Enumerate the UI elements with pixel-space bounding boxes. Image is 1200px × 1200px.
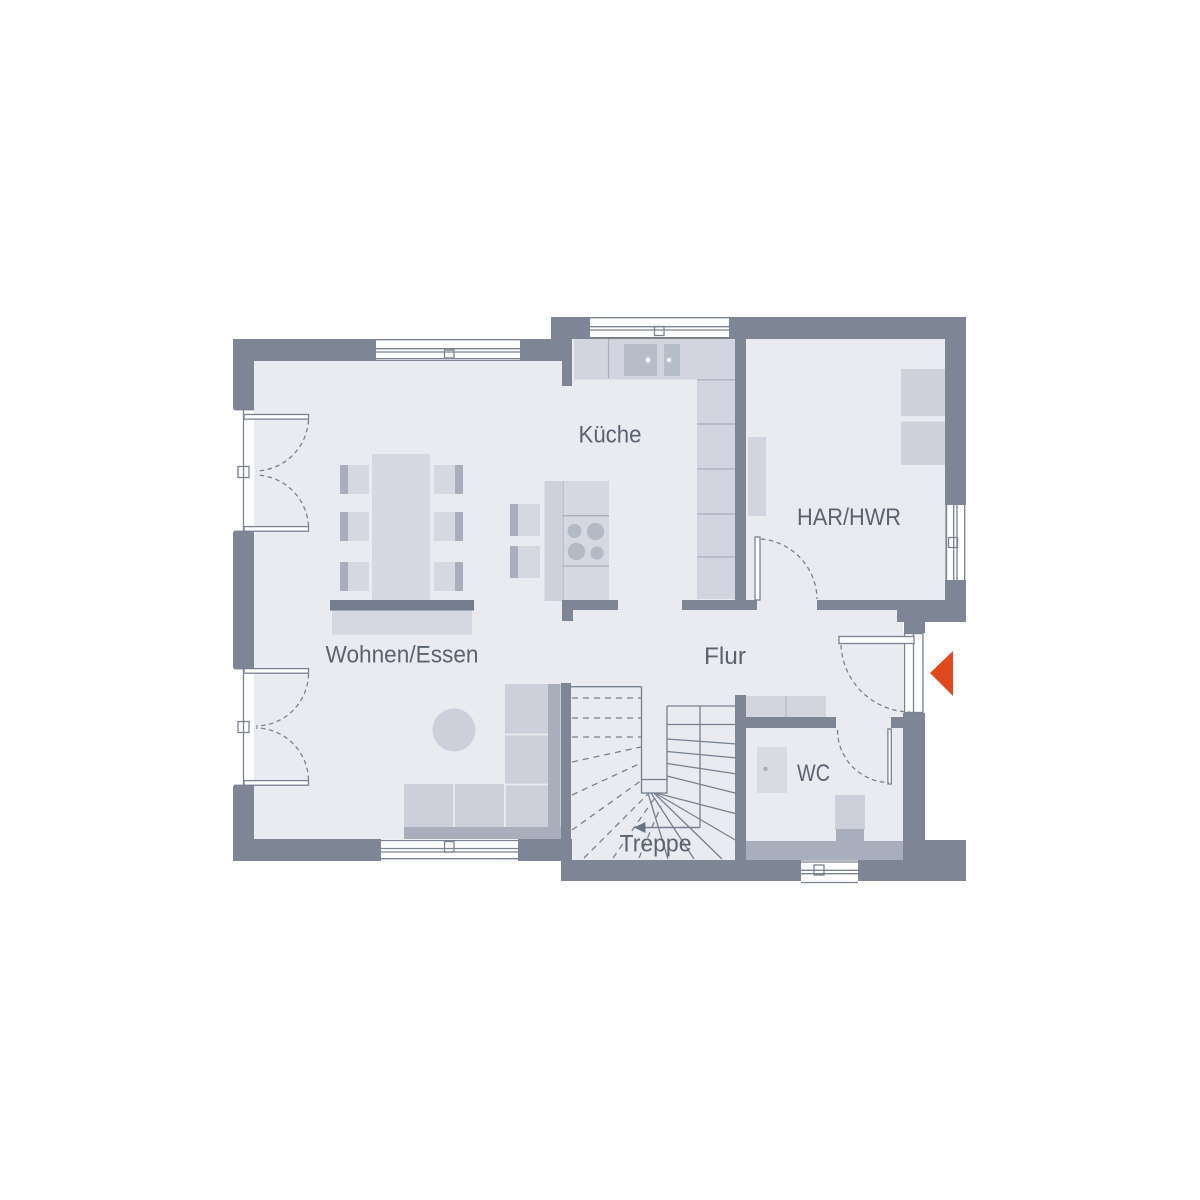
svg-text:WC: WC [797,760,830,787]
svg-text:HAR/HWR: HAR/HWR [797,504,901,531]
svg-text:Treppe: Treppe [620,831,692,858]
svg-text:Flur: Flur [704,643,746,670]
svg-text:Wohnen/Essen: Wohnen/Essen [326,642,479,669]
svg-text:Küche: Küche [579,422,642,449]
